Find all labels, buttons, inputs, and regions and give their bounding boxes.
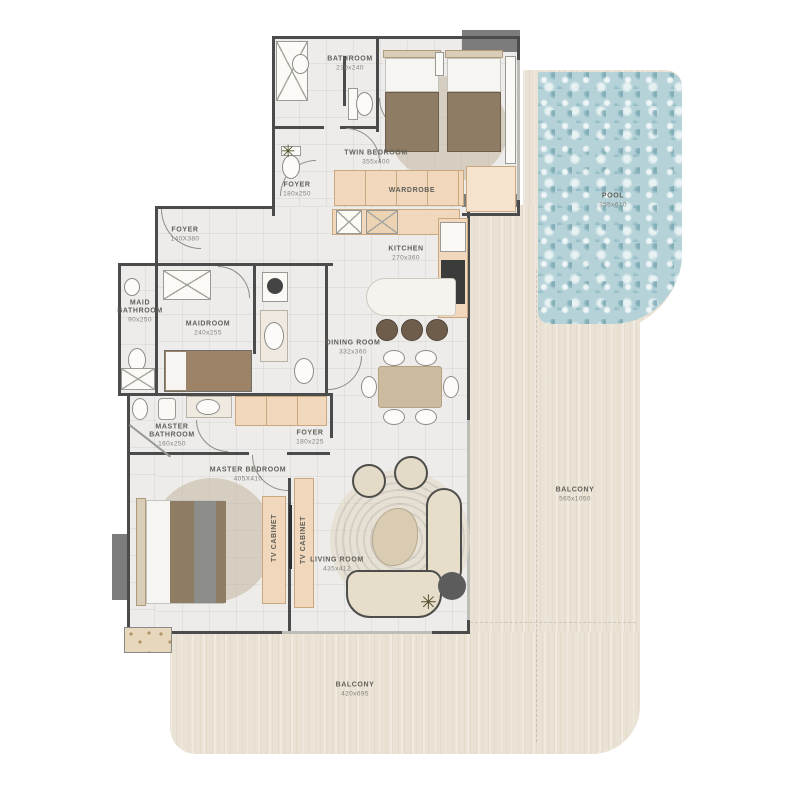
room-label-foyer-master: FOYER180x225 bbox=[296, 430, 324, 447]
room-dimensions: 405X410 bbox=[210, 476, 286, 484]
room-label-balcony-right: BALCONY565x1050 bbox=[556, 487, 595, 504]
room-label-dining-room: DINING ROOM332x360 bbox=[326, 340, 381, 357]
room-dimensions: 332x360 bbox=[326, 349, 381, 357]
room-label-bathroom: BATHROOM210x240 bbox=[327, 56, 373, 73]
room-name: TWIN BEDROOM bbox=[344, 150, 408, 158]
room-name: TV CABINET bbox=[300, 516, 308, 564]
room-label-twin-bedroom: TWIN BEDROOM355x400 bbox=[344, 150, 408, 167]
room-name: FOYER bbox=[171, 227, 200, 235]
room-name: BALCONY bbox=[556, 487, 595, 495]
room-label-kitchen: KITCHEN270x360 bbox=[388, 246, 423, 263]
room-name: FOYER bbox=[296, 430, 324, 438]
room-label-tv-cabinet-1: TV CABINET bbox=[271, 514, 279, 562]
room-label-master-bedroom: MASTER BEDROOM405X410 bbox=[210, 467, 286, 484]
room-name: MASTER BATHROOM bbox=[145, 424, 199, 440]
room-label-living-room: LIVING ROOM435x412 bbox=[310, 557, 364, 574]
room-label-pool: POOL355x610 bbox=[599, 193, 627, 210]
room-label-foyer-entry: FOYER140X380 bbox=[171, 227, 200, 244]
room-dimensions: 180x250 bbox=[283, 191, 311, 199]
room-name: BATHROOM bbox=[327, 56, 373, 64]
room-name: KITCHEN bbox=[388, 246, 423, 254]
room-dimensions: 270x360 bbox=[388, 255, 423, 263]
room-dimensions: 240x255 bbox=[186, 330, 230, 338]
room-dimensions: 355x400 bbox=[344, 159, 408, 167]
room-dimensions: 210x240 bbox=[327, 65, 373, 73]
room-name: LIVING ROOM bbox=[310, 557, 364, 565]
plant-icon: ✳ bbox=[281, 142, 295, 162]
room-dimensions: 90x250 bbox=[115, 317, 165, 325]
room-name: POOL bbox=[599, 193, 627, 201]
room-dimensions: 140X380 bbox=[171, 236, 200, 244]
room-label-wardrobe: WARDROBE bbox=[389, 187, 435, 195]
room-name: FOYER bbox=[283, 182, 311, 190]
room-name: MASTER BEDROOM bbox=[210, 467, 286, 475]
room-label-foyer-upper: FOYER180x250 bbox=[283, 182, 311, 199]
room-label-maidroom: MAIDROOM240x255 bbox=[186, 321, 230, 338]
room-name: WARDROBE bbox=[389, 187, 435, 195]
room-dimensions: 435x412 bbox=[310, 566, 364, 574]
room-name: TV CABINET bbox=[271, 514, 279, 562]
room-dimensions: 565x1050 bbox=[556, 496, 595, 504]
room-name: BALCONY bbox=[336, 682, 375, 690]
room-dimensions: 355x610 bbox=[599, 202, 627, 210]
plant-icon: ✳ bbox=[420, 590, 437, 615]
room-name: DINING ROOM bbox=[326, 340, 381, 348]
room-label-balcony-bottom: BALCONY420x695 bbox=[336, 682, 375, 699]
labels-layer: BATHROOM210x240TWIN BEDROOM355x400FOYER1… bbox=[0, 0, 800, 800]
room-dimensions: 160x250 bbox=[145, 441, 199, 449]
room-label-tv-cabinet-2: TV CABINET bbox=[300, 516, 308, 564]
room-name: MAID BATHROOM bbox=[115, 300, 165, 316]
room-dimensions: 180x225 bbox=[296, 439, 324, 447]
room-label-maid-bathroom: MAID BATHROOM90x250 bbox=[115, 300, 165, 325]
floor-plan: ✳ ✳ bbox=[0, 0, 800, 800]
room-name: MAIDROOM bbox=[186, 321, 230, 329]
room-dimensions: 420x695 bbox=[336, 691, 375, 699]
room-label-master-bathroom: MASTER BATHROOM160x250 bbox=[145, 424, 199, 449]
